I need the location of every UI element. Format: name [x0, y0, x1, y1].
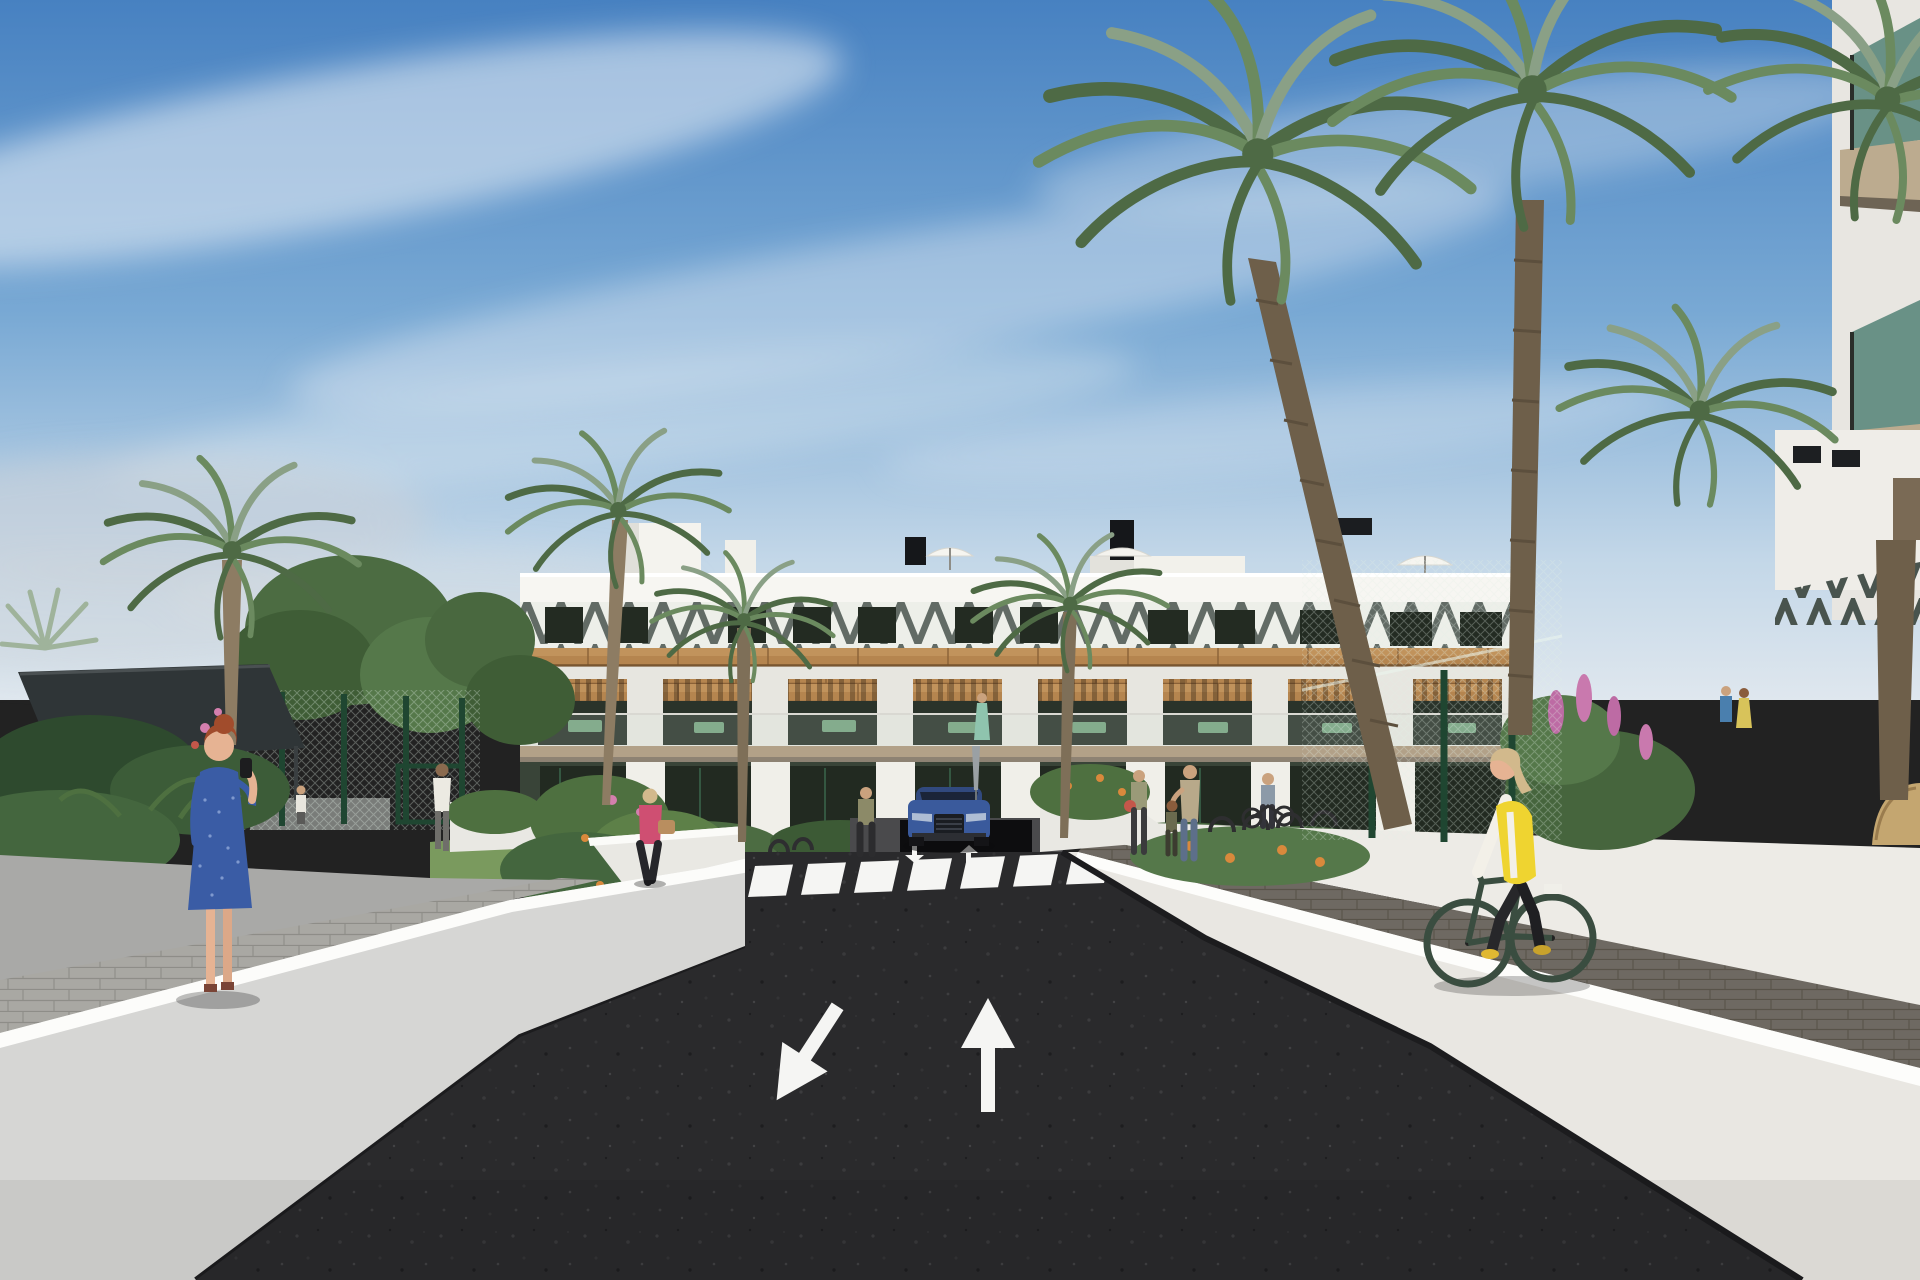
scene-canvas: [0, 0, 1920, 1280]
small-hedge: [447, 790, 543, 834]
wall-lamp-1: [1793, 446, 1821, 463]
roof-ac-box: [1337, 518, 1372, 535]
hair-bun: [214, 714, 234, 734]
render-viewport: [0, 0, 1920, 1280]
wall-lamp-2: [1832, 450, 1860, 467]
phone-woman-shadow: [176, 991, 260, 1009]
cyclist-shoe-2: [1533, 945, 1551, 955]
handbag: [658, 820, 675, 834]
vest-zip-white: [1510, 812, 1514, 878]
child-head: [1167, 801, 1178, 812]
palm-trunk-far-right: [1876, 540, 1916, 800]
car-wheel-right: [974, 837, 989, 846]
foreground-vignette: [0, 1180, 1920, 1280]
car-wheel-left: [909, 837, 924, 846]
stone-pillar: [1893, 478, 1920, 540]
phone: [240, 758, 252, 778]
chimney-left: [905, 537, 926, 565]
suv-car: [903, 787, 995, 853]
cyclist-shoe-1: [1481, 949, 1499, 959]
bike-basket: [1544, 884, 1562, 894]
fence-person: [296, 786, 306, 825]
